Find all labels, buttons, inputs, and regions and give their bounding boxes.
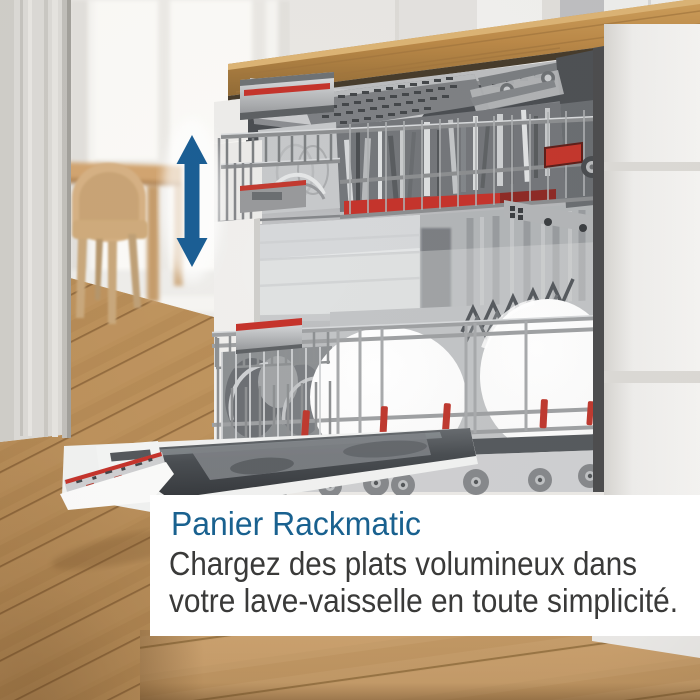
svg-text:Panier Rackmatic: Panier Rackmatic — [171, 505, 421, 542]
svg-text:votre lave-vaisselle en toute: votre lave-vaisselle en toute simplicité… — [169, 582, 678, 619]
svg-text:Chargez des plats volumineux d: Chargez des plats volumineux dans — [169, 545, 637, 582]
